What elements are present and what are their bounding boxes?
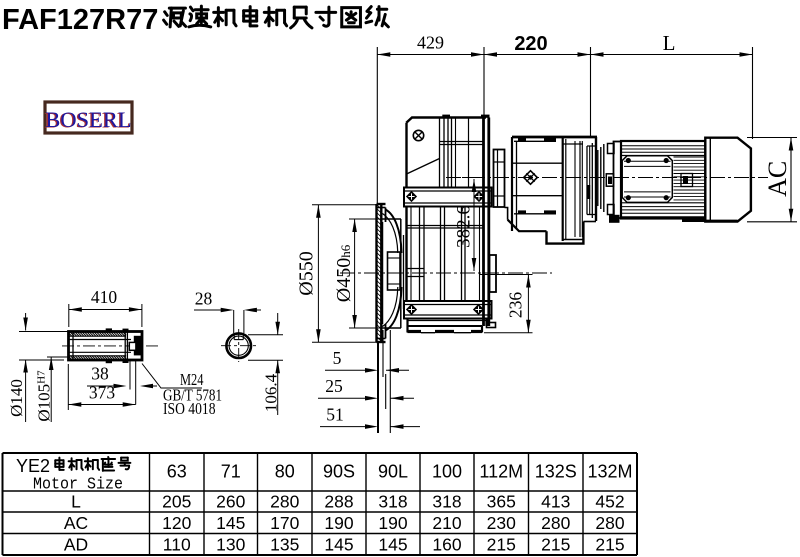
svg-text:220: 220	[514, 33, 547, 55]
svg-text:413: 413	[541, 492, 570, 512]
svg-text:38: 38	[91, 364, 109, 384]
svg-text:BOSERL: BOSERL	[45, 107, 131, 132]
svg-text:FAF127R77: FAF127R77	[2, 4, 158, 36]
svg-text:25: 25	[325, 376, 343, 396]
svg-text:AC: AC	[763, 161, 792, 197]
svg-text:28: 28	[195, 289, 213, 309]
svg-text:Ø140: Ø140	[7, 379, 26, 417]
svg-text:ISO 4018: ISO 4018	[163, 399, 216, 418]
svg-text:Ø450h6: Ø450h6	[333, 244, 355, 302]
svg-text:160: 160	[432, 534, 461, 554]
svg-text:Ø105H7: Ø105H7	[35, 370, 54, 422]
svg-text:120: 120	[162, 513, 191, 533]
svg-text:71: 71	[221, 462, 241, 482]
svg-text:L: L	[71, 492, 81, 512]
svg-text:318: 318	[432, 492, 461, 512]
svg-text:215: 215	[595, 534, 624, 554]
svg-text:210: 210	[432, 513, 461, 533]
svg-text:106.4: 106.4	[262, 373, 281, 412]
svg-text:Ø550: Ø550	[296, 251, 318, 295]
svg-text:AD: AD	[64, 534, 88, 554]
svg-text:145: 145	[378, 534, 407, 554]
svg-text:288: 288	[324, 492, 353, 512]
svg-text:318: 318	[378, 492, 407, 512]
svg-text:190: 190	[324, 513, 353, 533]
svg-text:215: 215	[541, 534, 570, 554]
svg-text:63: 63	[167, 462, 187, 482]
svg-text:170: 170	[270, 513, 299, 533]
svg-text:132S: 132S	[535, 462, 577, 482]
svg-text:280: 280	[595, 513, 624, 533]
svg-text:L: L	[663, 31, 676, 55]
svg-text:51: 51	[326, 405, 344, 425]
svg-text:365: 365	[487, 492, 516, 512]
svg-text:145: 145	[324, 534, 353, 554]
svg-text:110: 110	[163, 534, 191, 554]
svg-text:90L: 90L	[378, 462, 408, 482]
svg-text:190: 190	[378, 513, 407, 533]
svg-text:YE2: YE2	[16, 456, 50, 476]
svg-text:80: 80	[275, 462, 295, 482]
svg-text:373: 373	[89, 383, 116, 403]
svg-text:280: 280	[270, 492, 299, 512]
svg-text:452: 452	[595, 492, 624, 512]
svg-text:260: 260	[216, 492, 245, 512]
svg-text:130: 130	[216, 534, 245, 554]
svg-text:132M: 132M	[587, 462, 632, 482]
svg-text:280: 280	[541, 513, 570, 533]
svg-text:382.6: 382.6	[454, 205, 475, 248]
svg-text:236: 236	[506, 292, 526, 319]
svg-text:215: 215	[487, 534, 516, 554]
svg-text:AC: AC	[64, 513, 88, 533]
svg-text:230: 230	[487, 513, 516, 533]
svg-text:5: 5	[333, 348, 342, 368]
svg-text:429: 429	[417, 33, 444, 53]
svg-text:90S: 90S	[323, 462, 355, 482]
svg-text:205: 205	[162, 492, 191, 512]
svg-text:100: 100	[432, 462, 462, 482]
svg-text:410: 410	[91, 287, 118, 307]
svg-text:135: 135	[270, 534, 299, 554]
svg-text:145: 145	[216, 513, 245, 533]
svg-text:112M: 112M	[479, 462, 523, 482]
